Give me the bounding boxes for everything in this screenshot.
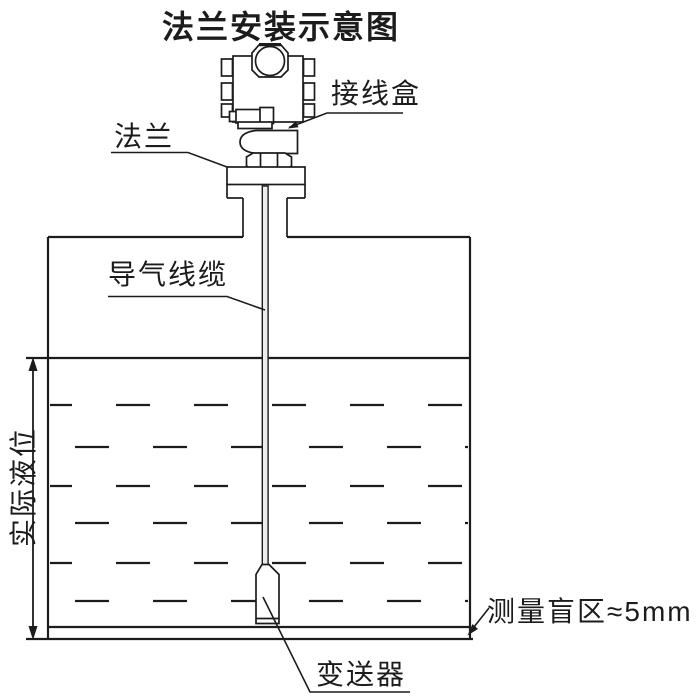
diagram-title: 法兰安装示意图 — [150, 2, 412, 48]
leader-lines — [108, 113, 489, 692]
tank-outline — [26, 237, 473, 639]
label-junction-box: 接线盒 — [331, 79, 421, 108]
label-air-cable: 导气线缆 — [108, 260, 228, 289]
neck-plate — [238, 122, 272, 129]
top-cap-circle — [256, 47, 285, 76]
conduit-block — [260, 108, 274, 124]
diagram-stage: 法兰安装示意图 接线盒 法兰 导气线缆 实际液位 测量盲区≈5mm 变送器 — [0, 0, 700, 700]
flange-plate — [227, 167, 305, 185]
rib-left-1 — [222, 59, 233, 76]
rib-right-2 — [304, 83, 315, 100]
probe-weight — [256, 565, 279, 624]
rib-right-3 — [304, 104, 315, 117]
air-guide-cable — [262, 186, 268, 566]
leader-air-cable — [108, 297, 265, 311]
label-actual-level: 实际液位 — [9, 426, 41, 548]
label-flange: 法兰 — [114, 122, 174, 151]
leader-flange — [111, 153, 227, 168]
label-blind-zone: 测量盲区≈5mm — [487, 597, 693, 626]
conduit-body — [236, 110, 262, 124]
label-transmitter: 变送器 — [316, 660, 406, 689]
swivel-joint — [240, 131, 298, 154]
rib-left-2 — [222, 83, 233, 100]
rib-right-1 — [304, 59, 315, 76]
